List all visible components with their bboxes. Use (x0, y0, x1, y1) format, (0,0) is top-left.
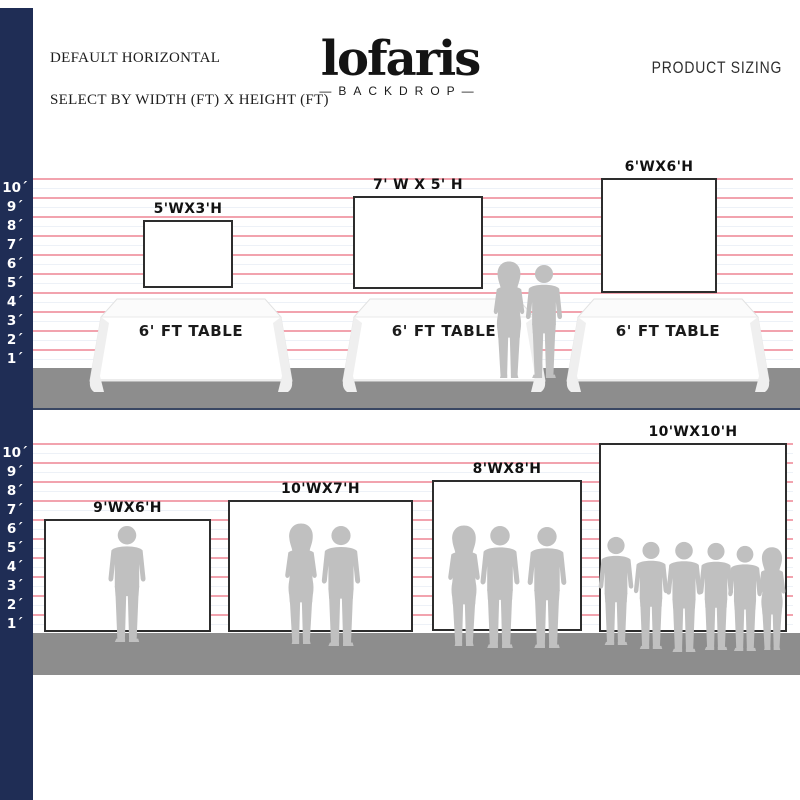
ruler-label: 2´ (0, 597, 30, 613)
ruler-label: 5´ (0, 540, 30, 556)
ruler-label: 6´ (0, 521, 30, 537)
table-6ft (86, 296, 296, 396)
ruler-label: 9´ (0, 199, 30, 215)
table-6ft (339, 296, 549, 396)
ruler-label: 9´ (0, 464, 30, 480)
floor (33, 633, 800, 675)
tablecloth-hem (353, 379, 535, 381)
tablecloth-top (354, 299, 534, 317)
backdrop-box (228, 500, 413, 632)
backdrop-size-label: 9'WX6'H (4, 500, 251, 516)
ruler-label: 7´ (0, 237, 30, 253)
ruler-label: 10´ (0, 180, 30, 196)
backdrop-size-label: 8'WX8'H (392, 461, 622, 477)
backdrop-box (601, 178, 717, 293)
backdrop-size-label: 6'WX6'H (561, 159, 757, 175)
tablecloth-hem (577, 379, 759, 381)
ruler-label: 2´ (0, 332, 30, 348)
ruler-label: 4´ (0, 294, 30, 310)
ruler-label: 1´ (0, 616, 30, 632)
backdrop-size-label: 7' W X 5' H (313, 177, 523, 193)
ruler-label: 3´ (0, 578, 30, 594)
table-label: 6' FT TABLE (86, 322, 296, 340)
ruler-label: 4´ (0, 559, 30, 575)
backdrop-size-label: 5'WX3'H (103, 201, 273, 217)
table-label: 6' FT TABLE (339, 322, 549, 340)
tablecloth-top (101, 299, 281, 317)
table-label: 6' FT TABLE (563, 322, 773, 340)
product-sizing-title: PRODUCT SIZING (652, 58, 782, 78)
ruler-label: 1´ (0, 351, 30, 367)
brand-sub-label: —BACKDROP— (0, 84, 800, 98)
ruler-label: 5´ (0, 275, 30, 291)
ruler-bar (0, 8, 33, 800)
backdrop-box (432, 480, 582, 631)
backdrop-size-label: 10'WX7'H (188, 481, 453, 497)
product-sizing-chart: DEFAULT HORIZONTAL SELECT BY WIDTH (FT) … (0, 0, 800, 800)
ruler-label: 8´ (0, 483, 30, 499)
backdrop-box (44, 519, 211, 632)
table-6ft (563, 296, 773, 396)
ruler-label: 3´ (0, 313, 30, 329)
ruler-label: 8´ (0, 218, 30, 234)
ruler-label: 6´ (0, 256, 30, 272)
backdrop-size-label: 10'WX10'H (559, 424, 800, 440)
tablecloth-top (578, 299, 758, 317)
backdrop-box (143, 220, 233, 288)
backdrop-box (353, 196, 483, 289)
backdrop-box (599, 443, 787, 632)
tablecloth-hem (100, 379, 282, 381)
ruler-label: 10´ (0, 445, 30, 461)
